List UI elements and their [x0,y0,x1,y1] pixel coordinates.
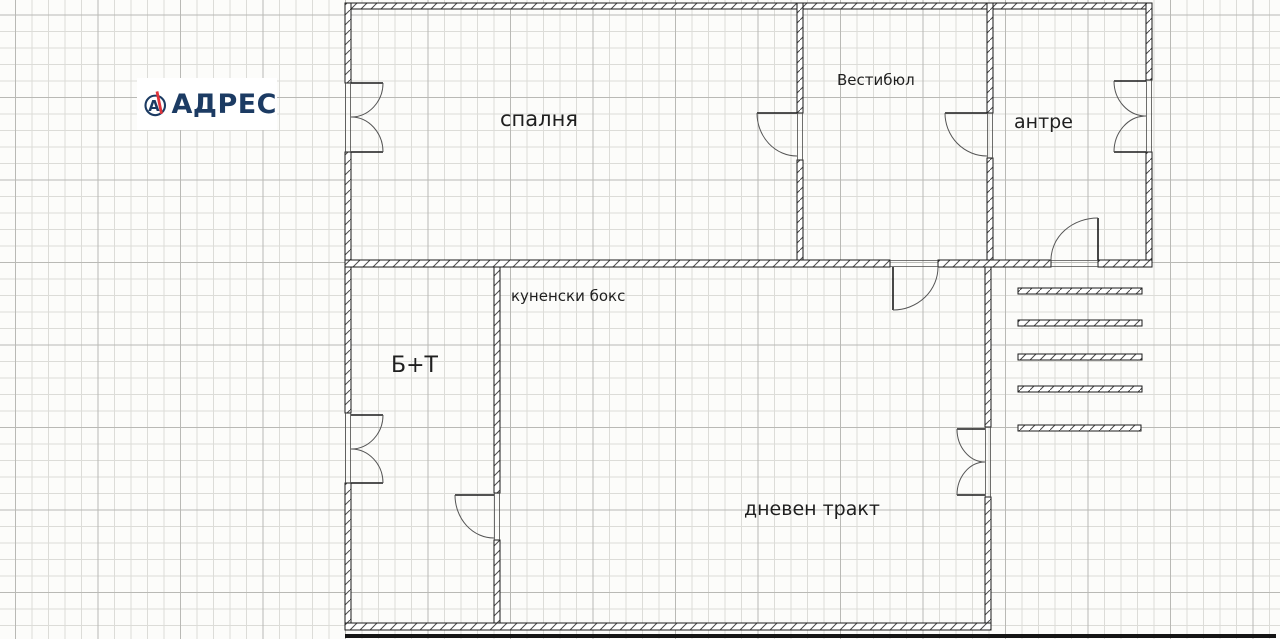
wall-left-seg3 [345,267,351,413]
wall-vestibule-antre-seg2 [987,158,993,262]
wall-living-right-seg2 [985,497,991,623]
wall-left-seg2 [345,152,351,262]
stairs [1018,288,1142,431]
wall-vestibule-antre-seg1 [987,3,993,113]
logo-text: АДРЕС [172,89,278,120]
wall-left-seg4 [345,483,351,630]
antre-exit-door [1051,218,1098,260]
bath-door [455,495,494,538]
stair-tread [1018,386,1142,392]
room-label-living: дневен тракт [744,499,880,520]
windows [351,81,1146,483]
stair-tread [1018,425,1141,431]
bedroom-window [351,83,383,152]
wall-bath-kitchen-seg2 [494,540,500,623]
stair-tread [1018,288,1142,294]
wall-mid-seg2 [938,260,1051,267]
adres-logo-icon: А [142,82,169,126]
base-line [345,634,1276,638]
wall-bath-kitchen-seg1 [494,267,500,493]
room-label-bedroom: спалня [500,108,578,131]
floor-plan-page: { "brand": { "name": "АДРЕС", "icon_lett… [0,0,1280,639]
adres-logo: А АДРЕС [137,78,277,130]
room-label-bath-toilet: Б+Т [391,354,438,378]
opening-face-lines [346,80,1152,540]
room-label-vestibule: Вестибюл [837,72,915,89]
wall-bedroom-vestibule-seg2 [797,160,803,262]
walls [345,3,1152,630]
wall-mid-seg3 [1098,260,1152,267]
stair-tread [1018,354,1142,360]
wall-living-right-seg1 [985,267,991,427]
bedroom-door [757,113,797,156]
wall-right-seg2 [1146,152,1152,262]
bath-window [351,415,383,483]
antre-window [1114,81,1146,152]
wall-bottom [345,623,991,630]
wall-top [345,3,1152,9]
wall-bedroom-vestibule-seg1 [797,3,803,113]
vestibule-antre-door [945,113,987,156]
room-label-antre: антре [1014,112,1073,133]
doors [455,113,1098,538]
wall-left-seg1 [345,3,351,83]
room-label-kitchenette: куненски бокс [511,288,625,305]
wall-mid-seg1 [345,260,890,267]
living-balcony-door [957,429,985,495]
vestibule-living-door [893,267,938,310]
wall-right-seg1 [1146,3,1152,80]
stair-tread [1018,320,1142,326]
